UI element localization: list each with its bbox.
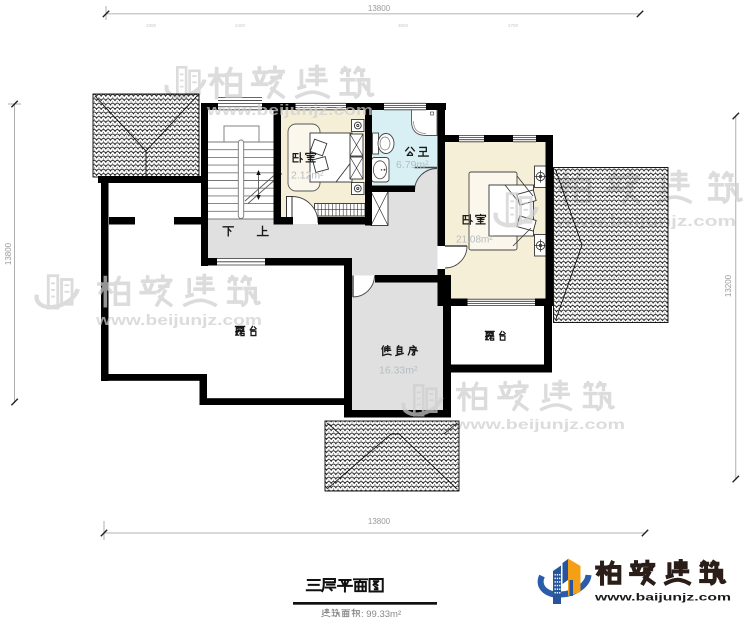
svg-text:3600: 3600: [398, 23, 409, 28]
svg-text:13200: 13200: [724, 274, 733, 297]
svg-text:13800: 13800: [368, 517, 391, 526]
svg-text:www.baijunjz.com: www.baijunjz.com: [593, 592, 731, 604]
svg-text:3300: 3300: [146, 23, 157, 28]
svg-text:2400: 2400: [235, 23, 246, 28]
svg-text:13800: 13800: [368, 4, 391, 13]
svg-text:16.33m²: 16.33m²: [379, 365, 418, 377]
svg-text:: 99.33m²: : 99.33m²: [361, 609, 401, 620]
svg-text:www.beijunjz.com: www.beijunjz.com: [206, 102, 373, 119]
svg-text:2.12m²: 2.12m²: [291, 170, 324, 182]
svg-text:2700: 2700: [508, 23, 519, 28]
svg-text:13800: 13800: [4, 242, 13, 265]
svg-text:6.79m²: 6.79m²: [396, 159, 429, 171]
svg-text:www.beijunjz.com: www.beijunjz.com: [454, 416, 625, 432]
svg-text:21.08m²: 21.08m²: [456, 235, 493, 246]
